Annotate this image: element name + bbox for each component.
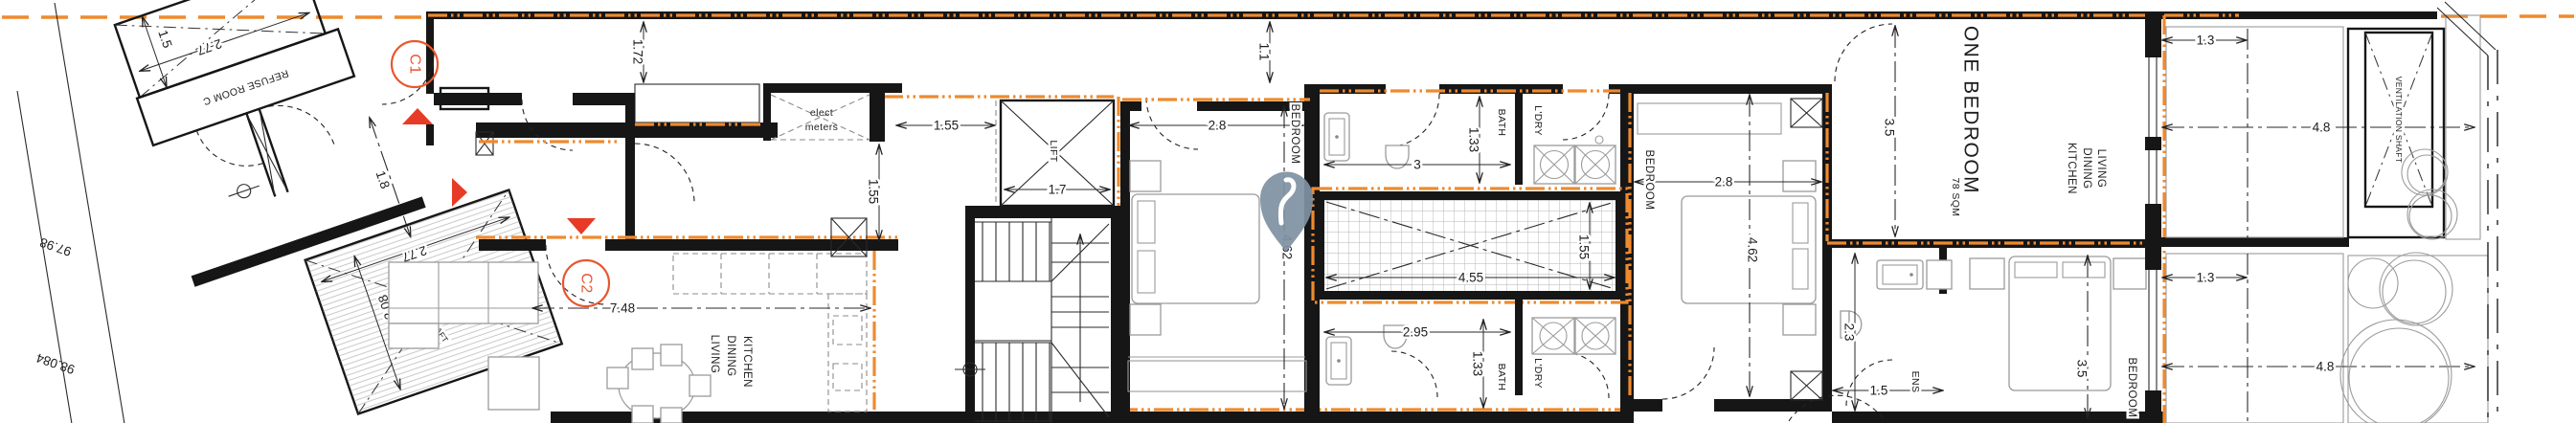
room-label-elect-1: elect	[810, 107, 833, 119]
washers-2	[1532, 318, 1616, 354]
wardrobe-2	[1638, 103, 1781, 134]
dim-bath2-d: 1.33	[1471, 351, 1485, 376]
dim-bed2-w: 2.8	[1715, 175, 1733, 189]
dim-terrace2-l: 4.8	[2316, 360, 2335, 374]
room-label-vent-shaft-right: VENTILATION SHAFT	[2394, 77, 2404, 163]
unit-title: ONE BEDROOM	[1960, 26, 1982, 194]
dim-ens-w: 1.5	[1870, 384, 1888, 398]
courtyard: 4.55 1.55	[1313, 189, 1627, 302]
room-label-bedroom-2: BEDROOM	[1643, 150, 1655, 211]
dim-shaft-width: 1.5	[155, 28, 174, 50]
dim-terrace2-w: 1.3	[2197, 271, 2215, 285]
terrace-tiles-bottom	[2166, 254, 2343, 423]
nightstand	[1130, 304, 1161, 335]
room-label-elect-2: meters	[805, 122, 839, 133]
floor-plan-page: 97.98 98.084 1.5 2.77 REFUSE ROOM C 1.8 …	[0, 0, 2576, 423]
dim-bath1-w: 3	[1413, 158, 1421, 172]
level-lower: 98.084	[34, 350, 77, 377]
floor-plan-drawing: 97.98 98.084 1.5 2.77 REFUSE ROOM C 1.8 …	[0, 0, 2576, 423]
unit-area: 78 SQM	[1950, 178, 1961, 217]
corridor-ramp	[635, 84, 759, 122]
dim-bed1-w: 2.8	[1209, 119, 1227, 133]
dim-bed2-l: 4.62	[1746, 237, 1760, 262]
nightstand	[1130, 161, 1161, 191]
room-label-living-1: LIVING	[709, 335, 720, 374]
room-label-bath-2: BATH	[1496, 364, 1507, 391]
room-label-lift: LIFT	[1048, 140, 1059, 162]
dim-shaft-length: 2.77	[195, 36, 224, 58]
entry-arrow-right	[452, 178, 467, 207]
dim-bath2-w: 2.95	[1403, 325, 1428, 340]
washers-1	[1534, 145, 1616, 184]
room-label-living-2: LIVING	[2095, 149, 2107, 189]
nightstand	[2113, 258, 2146, 289]
room-label-bath-1: BATH	[1496, 109, 1507, 137]
dim-bath1-d: 1.33	[1467, 127, 1481, 152]
room-label-kitchen-2: KITCHEN	[2066, 143, 2077, 194]
stairs	[975, 218, 1109, 423]
nightstand	[1970, 258, 2004, 289]
room-label-bedroom-1: BEDROOM	[1289, 104, 1300, 165]
dim-terrace1-w: 1.3	[2197, 33, 2215, 48]
bath-laundry-lower: 2.95 1.33 BATH L'DRY	[1325, 300, 1616, 407]
planting	[2340, 2, 2497, 423]
corridor: 1.72 1.1	[426, 11, 2437, 138]
one-bedroom-living: 3.5 ONE BEDROOM 78 SQM KITCHEN DINING LI…	[1827, 15, 2164, 423]
dim-ens-l: 2.3	[1842, 323, 1857, 342]
room-label-ldry-1: L'DRY	[1532, 105, 1544, 136]
unit-marker-c1-label: C1	[407, 54, 423, 74]
nightstand	[1783, 304, 1816, 335]
dim-lift: 1.7	[1049, 183, 1067, 197]
level-upper: 97.98	[38, 234, 74, 258]
dim-corridor-width-2: 1.1	[1257, 43, 1272, 61]
bedroom-3: 3.5 BEDROOM	[1970, 256, 2146, 417]
terrace-bottom: 1.3 4.8	[2163, 254, 2474, 423]
dim-courtyard-w: 1.55	[1577, 234, 1592, 259]
stair-core: LIFT 1.7	[955, 100, 1120, 423]
dim-terrace1-l: 4.8	[2313, 121, 2331, 135]
entry-arrow-down	[567, 218, 596, 234]
sofa	[389, 262, 538, 323]
unit-marker-c2-label: C2	[578, 273, 595, 293]
entry-arrow-up	[402, 108, 433, 124]
room-label-kitchen-1: KITCHEN	[741, 336, 753, 388]
dim-living2: 3.5	[1883, 119, 1897, 137]
elect-meters-closet: elect meters 1.55 1.55	[763, 88, 994, 239]
wardrobe-1	[1128, 361, 1306, 391]
dim-living-length: 7.48	[610, 301, 635, 316]
dim-lobby-1: 1.55	[934, 119, 959, 133]
bedroom-1: 2.8 4.62 BEDROOM	[1120, 84, 1320, 423]
rear-wall	[551, 412, 1628, 423]
room-label-dining-1: DINING	[725, 335, 736, 376]
room-label-bedroom-3: BEDROOM	[2126, 358, 2137, 418]
bedroom-2: 2.8 4.62 BEDROOM	[1620, 84, 1832, 412]
dim-corridor-width: 1.72	[631, 39, 645, 64]
dim-lobby-2: 1.55	[867, 179, 881, 204]
room-label-dining-2: DINING	[2081, 147, 2092, 189]
room-label-ldry-2: L'DRY	[1532, 358, 1544, 389]
dim-bed3: 3.5	[2075, 360, 2090, 378]
dim-courtyard-l: 4.55	[1458, 271, 1483, 285]
dim-entry-width: 1.8	[373, 168, 393, 190]
bed-1	[1132, 194, 1259, 303]
bed-3	[2009, 256, 2111, 390]
room-label-refuse: REFUSE ROOM C	[201, 67, 290, 107]
nightstand	[1783, 161, 1816, 191]
dining-table	[619, 353, 695, 418]
ventilation-shaft-right: VENTILATION SHAFT	[2348, 29, 2444, 237]
coffee-table	[488, 357, 539, 410]
room-label-ens: ENS	[1909, 371, 1921, 393]
